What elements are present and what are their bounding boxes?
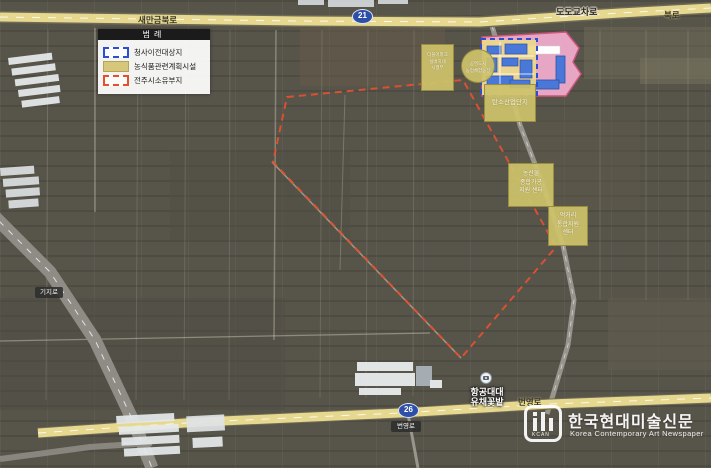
watermark-subtitle: Korea Contemporary Art Newspaper: [570, 429, 704, 438]
urban-farm-circle-label: 공영도시 농업체험농장: [461, 49, 495, 83]
road-badge-byeongyeong: 번영로: [391, 421, 421, 432]
yellow-fill-swatch-icon: [103, 61, 129, 72]
industrial-complex-label: 탄소산업단지: [484, 84, 536, 122]
camera-icon: [480, 372, 492, 384]
road-badge-left: 기지로: [35, 287, 63, 298]
legend-item-city-owned-land: 전주시소유부지: [103, 75, 204, 86]
food-support-center-label: 먹거리 통합지원 센터: [548, 206, 588, 246]
intersection-label-dodo: 도도교차로: [556, 5, 597, 18]
map-legend: 범례 청사이전대상지 농식품관련계획시설 전주시소유부지: [98, 29, 210, 94]
blue-dashed-swatch-icon: [103, 47, 129, 58]
route-21-shield: 21: [352, 9, 373, 24]
legend-item-agrifood-facility: 농식품관련계획시설: [103, 61, 204, 72]
legend-item-relocation-site: 청사이전대상지: [103, 47, 204, 58]
route-26-shield: 26: [398, 403, 419, 418]
road-label-saemangeum: 새만금북로: [138, 14, 177, 26]
satellite-map: 범례 청사이전대상지 농식품관련계획시설 전주시소유부지 더블어파크 실버지네 …: [0, 0, 711, 468]
silver-complex-label: 더블어파크 실버지네 시행부: [421, 44, 454, 91]
agri-processing-center-label: 농산물 종합가공 지원 센터: [508, 163, 554, 207]
kcan-logo-icon: KCAN: [524, 405, 562, 442]
kcan-initials: KCAN: [532, 432, 550, 438]
legend-title: 범례: [98, 29, 210, 40]
poi-label-rapeseed-field: 항공대대 유채꽃밭: [458, 387, 516, 407]
road-label-bukro: 북로: [664, 9, 680, 21]
red-dashed-swatch-icon: [103, 75, 129, 86]
